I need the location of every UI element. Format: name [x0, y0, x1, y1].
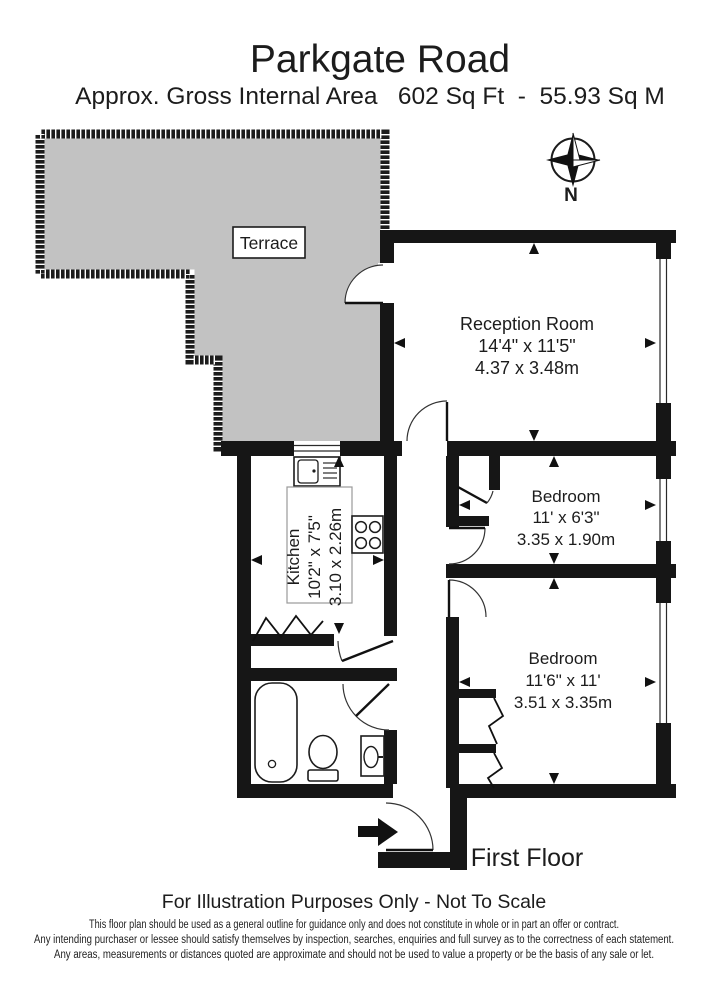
disclaimer-line-1: This floor plan should be used as a gene…: [89, 919, 619, 931]
door-bedroom2: [446, 578, 486, 617]
terrace-region: [40, 134, 385, 447]
door-closet-bedroom1: [458, 487, 493, 503]
bedroom1-imperial: 11' x 6'3": [532, 508, 599, 527]
disclaimer-line-3: Any areas, measurements or distances quo…: [54, 949, 654, 961]
window-kitchen: [294, 441, 340, 456]
notice-text: For Illustration Purposes Only - Not To …: [162, 891, 546, 913]
kitchen-hob-icon: [352, 516, 383, 553]
bedroom2-label: Bedroom 11'6" x 11' 3.51 x 3.35m: [514, 649, 612, 712]
compass-icon: [546, 133, 600, 187]
floor-plan-page: Parkgate Road Approx. Gross Internal Are…: [0, 0, 708, 1000]
window-bedroom1: [656, 479, 671, 541]
reception-name: Reception Room: [460, 314, 594, 334]
disclaimer-line-2: Any intending purchaser or lessee should…: [34, 934, 674, 946]
kitchen-name: Kitchen: [284, 529, 303, 586]
basin-icon: [361, 736, 384, 776]
bedroom1-name: Bedroom: [532, 487, 601, 506]
reception-imperial: 14'4" x 11'5": [478, 336, 575, 356]
kitchen-label: Kitchen 10'2" x 7'5" 3.10 x 2.26m: [284, 508, 345, 606]
entry-arrow-icon: [358, 818, 398, 846]
reception-metric: 4.37 x 3.48m: [475, 358, 579, 378]
door-bathroom: [343, 684, 389, 730]
terrace-label-box: Terrace: [233, 227, 305, 258]
bathroom-fixtures: [255, 683, 384, 782]
reception-label: Reception Room 14'4" x 11'5" 4.37 x 3.48…: [460, 314, 594, 378]
page-title: Parkgate Road: [250, 38, 510, 81]
bedroom1-label: Bedroom 11' x 6'3" 3.35 x 1.90m: [517, 487, 615, 549]
floor-label: First Floor: [471, 844, 584, 872]
kitchen-sink-icon: [294, 457, 340, 486]
compass-label: N: [564, 185, 578, 206]
bedroom2-name: Bedroom: [529, 649, 598, 668]
window-reception: [656, 259, 671, 403]
terrace-label: Terrace: [240, 233, 298, 253]
bathtub-icon: [255, 683, 297, 782]
door-reception: [402, 401, 447, 456]
bedroom1-metric: 3.35 x 1.90m: [517, 530, 615, 549]
door-bifold-bedroom2-bottom: [488, 753, 502, 788]
bedroom2-imperial: 11'6" x 11': [525, 671, 600, 690]
kitchen-metric: 3.10 x 2.26m: [326, 508, 345, 606]
window-bedroom2: [656, 603, 671, 723]
door-entry: [386, 803, 433, 850]
door-bedroom1: [446, 527, 485, 564]
page-subtitle: Approx. Gross Internal Area 602 Sq Ft - …: [75, 83, 665, 110]
kitchen-imperial: 10'2" x 7'5": [305, 515, 324, 599]
door-kitchen: [338, 641, 393, 661]
door-bifold-bedroom2-top: [489, 698, 503, 744]
toilet-icon: [308, 736, 338, 782]
bedroom2-metric: 3.51 x 3.35m: [514, 693, 612, 712]
